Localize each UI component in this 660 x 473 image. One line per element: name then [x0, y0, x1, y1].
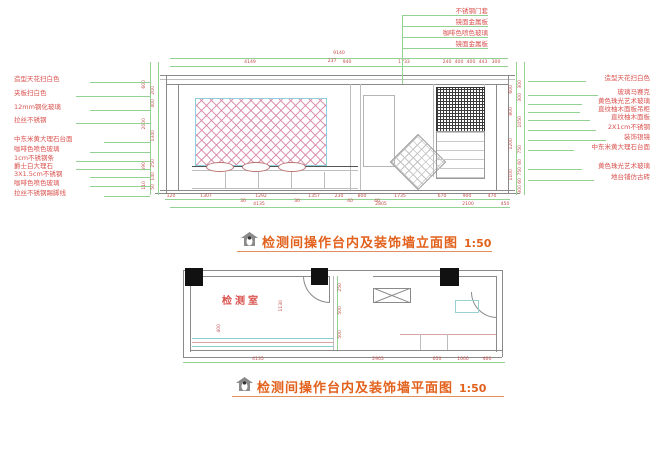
material-callout: 镜面金属板	[456, 19, 489, 26]
door-panel	[363, 95, 395, 167]
leader-line	[90, 186, 150, 187]
basin	[278, 162, 306, 172]
leader-line	[528, 140, 606, 141]
dim-text: 237	[328, 60, 337, 65]
leader-line	[528, 104, 582, 105]
dim-text: 400	[467, 61, 476, 66]
leader-line	[402, 15, 488, 16]
leader-line	[528, 95, 598, 96]
title-underline	[237, 251, 492, 252]
dim-text: 250	[339, 283, 344, 292]
leader-line	[104, 142, 150, 143]
material-callout: 黄色珠光艺术玻璃	[598, 163, 650, 170]
dim-text: 230	[335, 195, 344, 200]
dim-text: 1307	[200, 195, 212, 200]
duct-cross	[373, 288, 411, 303]
door-swing-arc	[303, 276, 330, 303]
leader-line	[528, 81, 586, 82]
elevation-title-text: 检测间操作台内及装饰墙立面图	[262, 236, 458, 251]
counter-line	[192, 338, 333, 339]
column	[185, 268, 203, 286]
dim-text: 1340	[152, 130, 157, 141]
basin	[242, 162, 270, 172]
dim-text: 120	[167, 195, 176, 200]
elevation-title-scale: 1:50	[464, 237, 491, 250]
dim-text: 900	[463, 195, 472, 200]
dim-text: 1130	[280, 300, 285, 311]
leader-line	[402, 26, 488, 27]
dim-text: 60	[519, 178, 524, 184]
leader-line	[402, 48, 488, 49]
plan-title-scale: 1:50	[459, 382, 486, 395]
dim-text: 2100	[462, 203, 474, 208]
leader-line	[528, 112, 580, 113]
dim-text: 500	[339, 330, 344, 339]
cabinet-divider	[225, 172, 226, 188]
dim-text: 400	[455, 61, 464, 66]
dim-text: 800	[510, 107, 515, 116]
material-callout: 拉丝不锈钢	[14, 117, 47, 124]
leader-line	[76, 169, 150, 170]
material-callout: 咖啡色喷色玻璃	[14, 180, 60, 187]
plan-title-text: 检测间操作台内及装饰墙平面图	[257, 381, 453, 396]
partition-line	[333, 276, 334, 350]
dim-text: 500	[339, 306, 344, 315]
wall-line	[190, 276, 191, 352]
dim-text: 240	[443, 61, 452, 66]
dim-text: 60	[519, 159, 524, 165]
teak-panel	[436, 131, 485, 179]
leader-line	[104, 196, 150, 197]
leader-line	[90, 82, 150, 83]
dim-text: 940	[343, 61, 352, 66]
material-callout: 镜面金属板	[456, 41, 489, 48]
dim-text: 470	[488, 195, 497, 200]
dim-text: 443	[479, 61, 488, 66]
leader-line	[90, 177, 150, 178]
dim-text: 4135	[253, 203, 265, 208]
material-callout: 直纹柚木面板吊柜	[598, 106, 650, 113]
basin	[206, 162, 234, 172]
dim-line	[170, 66, 508, 67]
material-callout: 中东米黄大理石台面	[14, 136, 73, 143]
dim-text: 300	[519, 93, 524, 102]
title-underline	[232, 396, 504, 397]
dim-text: 140	[152, 172, 157, 181]
dim-text: 2905	[372, 358, 384, 363]
dim-text: 1733	[398, 61, 410, 66]
dim-text: 670	[438, 195, 447, 200]
dim-text: 450	[501, 203, 510, 208]
leader-line	[528, 120, 590, 121]
leader-line	[528, 180, 594, 181]
wall-line	[360, 84, 361, 190]
material-callout: 3X1.5cm不锈钢	[14, 171, 62, 178]
wall-line	[373, 276, 496, 277]
wall-line	[502, 270, 503, 357]
material-callout: 夹板扫白色	[14, 90, 47, 97]
dim-text: 400	[218, 324, 223, 333]
material-callout: 地台铺仿古砖	[611, 174, 650, 181]
dim-text: 40	[347, 200, 353, 205]
dim-line	[158, 62, 159, 195]
dim-text: 200	[152, 86, 157, 95]
floor-line	[160, 190, 515, 191]
material-callout: 中东米黄大理石台面	[592, 144, 651, 151]
material-callout: 爵士白大理石	[14, 163, 53, 170]
leader-line	[76, 161, 150, 162]
material-callout: 12mm钢化玻璃	[14, 104, 61, 111]
dim-text: 750	[519, 167, 524, 176]
material-callout: 玻璃马赛克	[618, 89, 651, 96]
dim-text: 2805	[375, 203, 387, 208]
mosaic-wall	[436, 87, 485, 133]
wall-line	[350, 84, 351, 190]
fitting-line	[447, 334, 448, 350]
dim-text: 300	[492, 61, 501, 66]
dim-text: 1200	[510, 138, 515, 149]
leader-line	[76, 96, 150, 97]
ceiling-line	[166, 84, 508, 85]
dim-text: 400	[152, 99, 157, 108]
stamp-icon	[236, 377, 253, 392]
wall-line	[496, 84, 497, 190]
material-callout: 咖啡色喷色玻璃	[443, 30, 489, 37]
fitting-line	[400, 334, 496, 335]
plan-title: 检测间操作台内及装饰墙平面图1:50	[257, 377, 486, 396]
wall-line	[178, 84, 179, 190]
dim-text: 1100	[510, 169, 515, 180]
elevation-title: 检测间操作台内及装饰墙立面图1:50	[262, 232, 491, 251]
room-label: 检测室	[222, 292, 261, 307]
wall-line	[183, 270, 184, 357]
dim-line	[524, 62, 525, 195]
material-callout: 不锈钢门套	[456, 8, 489, 15]
wall-line	[166, 75, 167, 193]
dim-text: 300	[519, 80, 524, 89]
dim-line	[170, 207, 510, 208]
material-callout: 直纹柚木面板	[611, 114, 650, 121]
dim-text: 50	[152, 184, 157, 190]
leader-line	[90, 152, 150, 153]
material-callout: 1cm不锈钢条	[14, 155, 54, 162]
counter-line	[192, 346, 333, 347]
material-callout: 装饰银镜	[624, 134, 650, 141]
counter-line	[192, 342, 333, 343]
dim-text: 30	[294, 200, 300, 205]
material-callout: 黄色珠光艺术玻璃	[598, 98, 650, 105]
material-callout: 咖啡色喷色玻璃	[14, 146, 60, 153]
dim-text: 4135	[252, 358, 264, 363]
beam-line	[160, 79, 515, 80]
dim-text: 1292	[255, 195, 267, 200]
dim-text: 460	[483, 358, 492, 363]
glass-wall-hatch	[195, 98, 327, 166]
material-callout: 造型天花扫白色	[605, 75, 651, 82]
dim-text: 30	[240, 200, 246, 205]
stamp-icon	[241, 232, 258, 247]
leader-line	[76, 123, 150, 124]
dim-text: 250	[152, 159, 157, 168]
dim-text: 800	[358, 195, 367, 200]
leader-line	[402, 37, 488, 38]
wall-line	[190, 350, 502, 351]
leader-line	[90, 110, 150, 111]
dim-text: 1735	[394, 195, 406, 200]
cabinet-divider	[258, 172, 259, 188]
cabinet-line	[192, 188, 358, 189]
dim-text: 1050	[519, 116, 524, 127]
dim-text: 4149	[244, 61, 256, 66]
dim-text: 1000	[457, 358, 469, 363]
dim-text: 600	[510, 85, 515, 94]
fitting-box	[455, 300, 479, 313]
dim-text: 650	[433, 358, 442, 363]
cabinet-divider	[324, 172, 325, 188]
dim-line	[170, 58, 508, 59]
material-callout: 拉丝不锈钢踢脚线	[14, 190, 66, 197]
material-callout: 2X1cm不锈钢	[608, 124, 650, 131]
leader-line	[528, 150, 574, 151]
wall-line	[183, 357, 502, 358]
beam-line	[160, 75, 515, 76]
material-callout: 造型天花扫白色	[14, 76, 60, 83]
dim-text: 300	[519, 185, 524, 194]
cabinet-divider	[291, 172, 292, 188]
leader-line	[528, 130, 596, 131]
dim-text: 1357	[308, 195, 320, 200]
drawing-sheet: 9140 237 4149 940 1733 240 400 400 443 3…	[0, 0, 660, 473]
dim-text: 9140	[333, 52, 345, 57]
column	[440, 268, 459, 286]
fitting-line	[420, 334, 421, 350]
leader-line	[528, 169, 582, 170]
dim-text: 750	[519, 145, 524, 154]
